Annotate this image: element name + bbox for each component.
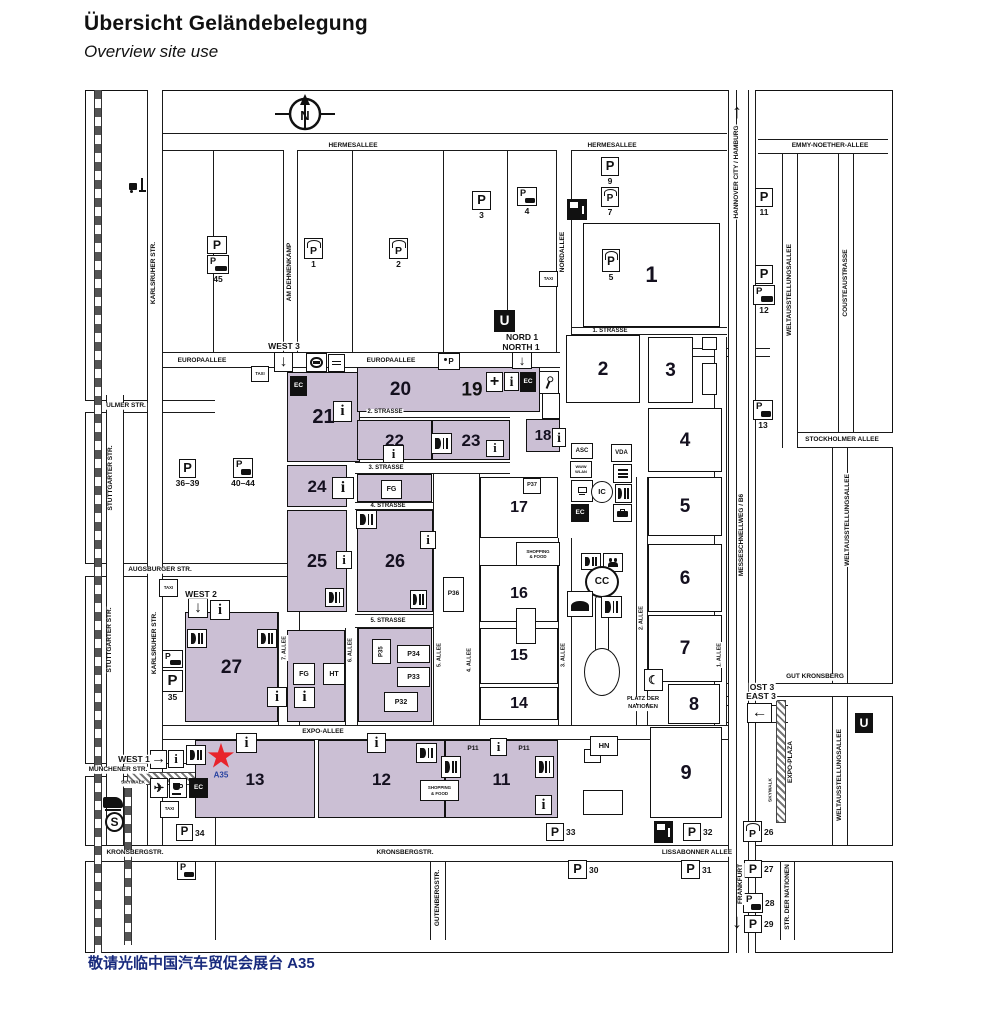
icon-part: WLAN	[575, 470, 587, 474]
restaurant-icon	[186, 745, 206, 765]
parking-icon: P	[162, 670, 183, 692]
map-label: WELTAUSSTELLUNGSALLEE	[845, 473, 852, 567]
skywalk-bridge	[776, 700, 786, 823]
map-label: HANNOVER CITY / HAMBURG	[734, 124, 741, 219]
parking-number: 5	[609, 273, 614, 282]
parking-number: 3	[479, 211, 484, 220]
parking-icon: P	[472, 191, 491, 210]
hall-number: 21	[312, 407, 334, 427]
parking-icon: P	[546, 823, 564, 841]
building-annex	[702, 337, 717, 350]
bus-parking-icon: P	[517, 187, 537, 206]
map-label: WELTAUSSTELLUNGSALLEE	[787, 243, 794, 337]
label-box-asc: ASC	[571, 443, 593, 459]
ec-cash-icon: EC	[189, 778, 208, 798]
icon-part	[618, 473, 628, 475]
hall-number: 8	[689, 695, 699, 713]
subway-station-icon: U	[494, 310, 515, 332]
hall-number: 4	[680, 431, 691, 450]
icon-part	[130, 190, 133, 193]
icon-part	[215, 266, 227, 271]
entrance-arrow-icon: →	[150, 750, 167, 769]
direction-arrow-icon: ↑	[728, 100, 746, 124]
icon-part: i	[218, 603, 222, 617]
icon-part: i	[275, 690, 279, 704]
hall-number: 5	[680, 497, 691, 516]
hall-number: 25	[307, 552, 327, 570]
hall-number: 17	[510, 500, 528, 516]
information-icon: i	[552, 428, 566, 447]
road	[560, 327, 727, 335]
map-label: HERMESALLEE	[586, 143, 637, 150]
icon-part	[545, 761, 547, 773]
page-title: Übersicht Geländebelegung	[84, 12, 368, 36]
map-label: MESSESCHNELLWEG / B6	[739, 493, 746, 577]
icon-part	[332, 364, 341, 366]
key-service-icon	[539, 371, 559, 394]
truck-parking-icon: P	[207, 255, 229, 274]
map-label: AM DEHNENKAMP	[287, 242, 294, 303]
map-label: 7. ALLEE	[282, 635, 288, 661]
icon-part	[190, 750, 195, 761]
icon-part: P	[760, 268, 769, 281]
icon-part	[614, 558, 618, 562]
icon-part	[525, 198, 535, 203]
road-line	[215, 862, 216, 940]
hall-number: 13	[246, 771, 265, 788]
map-label: ULMER STR.	[105, 403, 147, 410]
map-label: 5. ALLEE	[437, 642, 443, 668]
icon-part: i	[342, 554, 346, 567]
parking-number: 34	[195, 828, 204, 837]
hall-17: 17	[480, 477, 558, 538]
parking-number: 35	[168, 693, 177, 702]
icon-part: i	[174, 753, 178, 766]
map-label: EXPO-PLAZA	[788, 740, 795, 784]
roof-parking-icon: P	[304, 238, 323, 259]
parking-icon: P	[683, 823, 701, 841]
fuel-station-icon	[567, 199, 587, 220]
roof-parking-icon: P	[601, 187, 619, 207]
hall-number: 3	[665, 361, 676, 380]
map-label: 2. ALLEE	[639, 605, 645, 631]
icon-part	[371, 514, 373, 524]
restaurant-icon	[356, 510, 377, 529]
information-icon: i	[383, 445, 404, 463]
hall-number: 18	[535, 428, 552, 443]
icon-part	[141, 178, 143, 190]
road-line	[443, 151, 444, 352]
icon-part	[761, 296, 773, 302]
icon-part: P	[606, 160, 615, 173]
pavilion-icon	[567, 591, 593, 617]
road-line	[507, 151, 508, 321]
hall-number: 15	[510, 648, 528, 664]
map-label: STOCKHOLMER ALLEE	[804, 437, 880, 444]
map-label: P11	[518, 746, 529, 753]
information-icon: i	[267, 687, 287, 707]
hall-number: 7	[680, 639, 691, 658]
parking-icon: P	[681, 860, 700, 879]
building-annex	[702, 363, 717, 395]
map-label: STUTTGARTER STR.	[108, 445, 115, 512]
truck-parking-icon: P	[743, 893, 763, 913]
hall-number: 9	[680, 763, 691, 783]
road-line	[352, 151, 353, 352]
icon-part	[431, 748, 433, 759]
icon-part	[608, 558, 618, 567]
hall-8: 8	[668, 684, 720, 724]
icon-part	[657, 824, 665, 830]
icon-part	[595, 557, 597, 566]
no-entry-icon	[306, 353, 327, 372]
map-label: GUTENBERGSTR.	[435, 869, 442, 927]
label-box-p35: P35	[372, 639, 391, 664]
icon-part	[443, 438, 445, 449]
label-box-vda: VDA	[611, 444, 632, 462]
map-label: SKYWALK	[120, 782, 146, 787]
cafe-icon	[169, 778, 187, 798]
information-icon: i	[294, 687, 315, 708]
map-label: EUROPAALLEE	[366, 358, 417, 365]
icon-part	[544, 375, 554, 389]
icon-part	[339, 592, 341, 602]
icon-part	[307, 240, 321, 248]
label-box-p37: P37	[523, 478, 541, 494]
ec-cash-icon: EC	[571, 504, 589, 522]
hall-number: 1	[645, 264, 657, 286]
icon-part: P	[749, 918, 757, 930]
hall-number: 12	[372, 771, 391, 788]
parking-number: 4	[525, 207, 530, 216]
information-icon: i	[367, 733, 386, 753]
parking-number: 29	[764, 920, 773, 929]
hall-number: 23	[462, 432, 481, 449]
icon-part	[139, 190, 146, 192]
icon-part	[539, 761, 544, 773]
label-box-fg: FG	[293, 663, 315, 685]
icon-part	[618, 469, 628, 478]
entrance-arrow-icon: ↓	[512, 352, 532, 369]
information-icon: i	[236, 733, 257, 753]
hall-2: 2	[566, 335, 640, 403]
icon-part	[268, 633, 270, 643]
map-label: EAST 3	[745, 692, 777, 701]
hall-6: 6	[648, 544, 722, 612]
map-label: KRONSBERGSTR.	[375, 850, 434, 857]
shopping-food-box: SHOPPING& FOOD	[420, 780, 459, 801]
icon-part	[618, 488, 623, 498]
icon-part: & FOOD	[529, 554, 546, 559]
icon-part	[616, 601, 618, 613]
taxi-sign: TAXI	[539, 271, 558, 287]
hall-14: 14	[480, 687, 558, 720]
parking-number: 28	[765, 899, 774, 908]
icon-part	[624, 488, 626, 498]
icon-part	[200, 750, 202, 761]
label-box-p34: P34	[397, 645, 430, 663]
parking-icon: P	[601, 157, 619, 176]
parking-number: 27	[764, 865, 773, 874]
truck-parking-icon: P	[753, 285, 775, 305]
icon-part: P	[746, 895, 752, 905]
parking-icon: P	[744, 915, 762, 933]
svg-text:N: N	[300, 108, 309, 123]
map-label: STUTTGARTER STR.	[107, 607, 114, 674]
parking-number: 31	[702, 865, 711, 874]
parking-number: 11	[760, 208, 769, 217]
icon-part	[617, 511, 628, 517]
icon-part: P	[688, 826, 696, 838]
forklift-icon	[127, 173, 147, 194]
icon-part	[197, 750, 199, 761]
truck-parking-icon: P	[233, 458, 253, 478]
icon-part	[170, 660, 181, 665]
icon-part	[413, 594, 418, 604]
information-icon: i	[504, 372, 519, 391]
icon-part: P	[210, 257, 216, 266]
internet-terminal-icon	[571, 480, 593, 502]
map-label: FRANKFURT	[738, 863, 745, 905]
map-label: 2. STRASSE	[366, 409, 403, 415]
hall-number: 16	[510, 586, 528, 602]
taxi-sign: TAXI	[160, 801, 179, 818]
map-label: COUSTEAUSTRASSE	[843, 248, 850, 317]
hall-9: 9	[650, 727, 722, 818]
information-icon: i	[420, 531, 436, 549]
first-aid-icon: +	[486, 372, 503, 392]
parking-number: 12	[759, 306, 768, 315]
road	[85, 845, 893, 862]
map-label: 4. STRASSE	[369, 503, 406, 509]
icon-part	[761, 411, 771, 417]
hall-1: 1	[583, 223, 720, 327]
icon-part	[191, 633, 196, 643]
icon-part: i	[245, 736, 249, 750]
icon-part: P	[756, 287, 762, 297]
icon-part	[444, 358, 447, 361]
parking-number: 30	[589, 865, 598, 874]
icon-part	[446, 438, 448, 449]
truck-parking-icon: P	[753, 400, 773, 420]
icon-part	[445, 761, 450, 773]
icon-part	[368, 514, 370, 524]
ec-cash-icon: EC	[520, 372, 536, 392]
map-label: LISSABONNER ALLEE	[661, 850, 733, 857]
hall-number: 11	[493, 771, 511, 788]
icon-part	[571, 601, 588, 611]
map-label: WEST 3	[267, 342, 301, 351]
icon-part: i	[302, 690, 306, 705]
hall-number: 24	[308, 478, 327, 495]
icon-part	[428, 748, 430, 759]
icon-part: i	[341, 480, 345, 496]
building-annex	[583, 790, 623, 815]
airport-icon: ✈	[150, 778, 168, 798]
map-label: EMMY-NOETHER-ALLEE	[791, 143, 870, 150]
icon-part: P	[180, 863, 186, 872]
hall-3: 3	[648, 337, 693, 403]
hall-number: 20	[390, 380, 411, 399]
icon-part: P	[573, 863, 582, 876]
icon-part: P	[183, 462, 192, 475]
parking-icon: P	[755, 188, 773, 207]
map-label: WEST 1	[117, 755, 151, 764]
footer-note: 敬请光临中国汽车贸促会展台 A35	[88, 952, 315, 973]
map-label: EUROPAALLEE	[177, 358, 228, 365]
icon-part: i	[340, 404, 344, 419]
icon-part	[578, 487, 587, 496]
label-box-ht: HT	[323, 663, 345, 685]
hall-number: 2	[598, 360, 609, 379]
parking-number: 9	[608, 177, 613, 186]
hall-number: 26	[385, 552, 405, 570]
icon-part: P	[181, 827, 189, 839]
map-label: 4. ALLEE	[467, 647, 473, 673]
icon-part	[452, 761, 454, 773]
hall-4: 4	[648, 408, 722, 472]
map-label: NATIONEN	[627, 705, 659, 711]
icon-part	[609, 558, 618, 562]
entrance-arrow-icon: ←	[747, 703, 772, 723]
direction-arrow-icon: ↓	[728, 910, 746, 934]
icon-part	[579, 494, 585, 496]
icon-part	[604, 189, 617, 196]
icon-part	[129, 183, 137, 190]
restaurant-icon	[416, 743, 437, 763]
restaurant-icon	[441, 756, 461, 778]
parking-icon: P	[176, 824, 193, 841]
parking-icon: P	[744, 860, 762, 878]
map-label: 1. ALLEE	[717, 642, 723, 668]
restaurant-icon	[410, 590, 427, 609]
parking-number: 45	[213, 275, 222, 284]
icon-part	[668, 828, 670, 837]
icon-part	[103, 797, 123, 808]
map-label: KRONSBERGSTR.	[105, 850, 164, 857]
icon-part: P	[686, 863, 695, 876]
icon-part	[546, 381, 551, 389]
icon-part	[582, 206, 584, 215]
taxi-sign: TAXI	[251, 366, 269, 382]
entrance-arrow-icon: ↓	[274, 352, 293, 372]
icon-part: i	[426, 534, 430, 547]
icon-part	[261, 633, 266, 643]
compass-icon: N	[273, 90, 337, 143]
hn-badge: HN	[590, 736, 618, 756]
icon-part	[617, 509, 628, 517]
railway-line	[124, 788, 132, 945]
hall-number: 6	[680, 569, 691, 588]
restaurant-icon	[535, 756, 554, 778]
icon-part	[201, 633, 203, 643]
map-label: 3. STRASSE	[367, 465, 404, 471]
icon-part	[313, 361, 319, 363]
label-box-fg: FG	[381, 480, 402, 499]
restaurant-icon	[601, 596, 622, 618]
icon-part	[585, 557, 590, 566]
hall-number: 27	[221, 658, 242, 677]
train-icon	[103, 790, 123, 812]
icon-part	[549, 761, 551, 773]
map-label: KARLSRUHER STR.	[152, 611, 159, 675]
icon-part	[329, 592, 334, 602]
information-icon: i	[168, 750, 184, 768]
icon-part	[578, 487, 587, 493]
hall-5: 5	[648, 477, 722, 536]
info-sign-icon	[328, 354, 345, 372]
icon-part: i	[542, 798, 546, 812]
wlan-icon: WWWWLAN	[570, 461, 592, 478]
icon-part	[332, 361, 341, 363]
map-label: 6. ALLEE	[348, 637, 354, 663]
icon-part	[173, 783, 183, 793]
parking-number: 36–39	[176, 479, 200, 488]
map-label: MÜNCHENER STR.	[88, 767, 149, 774]
icon-part	[627, 488, 629, 498]
fuel-station-icon	[654, 821, 673, 843]
page-subtitle: Overview site use	[84, 42, 218, 62]
icon-part: P	[756, 402, 762, 412]
taxi-sign: TAXI	[159, 579, 178, 597]
icon-part	[332, 361, 341, 365]
restaurant-icon	[257, 629, 277, 648]
building-annex	[516, 608, 536, 644]
icon-part	[613, 601, 615, 613]
icon-part: i	[510, 375, 514, 389]
icon-part	[198, 633, 200, 643]
icon-part	[179, 784, 183, 788]
icon-part: i	[493, 442, 496, 454]
information-icon: i	[486, 440, 504, 457]
icon-part	[751, 904, 761, 910]
parking-number: 33	[566, 828, 575, 837]
restaurant-icon	[325, 588, 344, 607]
pickup-parking-icon: P	[438, 353, 460, 370]
icon-part: P	[213, 239, 221, 251]
label-box-p36: P36	[443, 577, 464, 612]
icon-part	[570, 202, 578, 208]
label-box-p33: P33	[397, 667, 430, 687]
icon-part	[608, 562, 618, 567]
parking-number: 13	[758, 421, 767, 430]
icon-part	[609, 558, 613, 562]
icon-part	[605, 251, 618, 260]
map-label: NORDALLEE	[560, 231, 567, 273]
icon-part: i	[392, 448, 396, 461]
icon-part: P	[551, 826, 559, 838]
restaurant-icon	[431, 433, 452, 454]
parking-number: 32	[703, 828, 712, 837]
entrance-arrow-icon: ↓	[188, 598, 208, 618]
map-label: SKYWALK	[770, 777, 775, 803]
parking-icon: P	[207, 236, 227, 254]
parking-icon: P	[568, 860, 587, 879]
map-label: 3. ALLEE	[561, 642, 567, 668]
icon-part	[360, 514, 366, 524]
shopping-food-box: SHOPPING& FOOD	[516, 542, 560, 566]
icon-part	[435, 438, 441, 449]
icon-part	[105, 809, 121, 811]
icon-part	[184, 872, 194, 877]
icon-part	[241, 469, 251, 475]
map-label: P11	[467, 746, 478, 753]
prayer-room-icon: ☾	[644, 669, 663, 691]
information-icon: i	[333, 401, 352, 422]
icon-part: i	[375, 736, 379, 750]
railway-line	[94, 90, 102, 953]
icon-part	[172, 793, 181, 795]
